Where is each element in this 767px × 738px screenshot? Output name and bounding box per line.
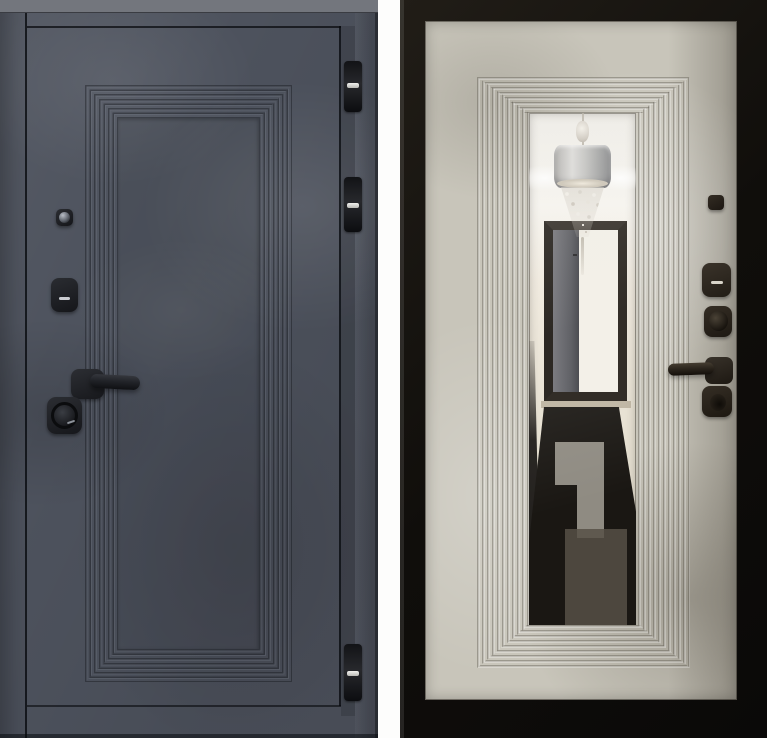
hinge-pin-highlight — [347, 671, 359, 676]
molding-band-bottom — [85, 649, 292, 682]
night-latch-knob — [702, 386, 732, 417]
hinge-bottom — [344, 644, 362, 701]
hinge-top — [344, 61, 362, 112]
molding-band-right — [259, 85, 292, 682]
front-frame-header — [0, 0, 378, 13]
peephole — [56, 209, 73, 226]
thumbturn-knob — [709, 311, 728, 331]
hinge-middle — [344, 177, 362, 232]
back-door-leaf — [425, 21, 737, 700]
keyhole-escutcheon — [51, 278, 78, 312]
mirror-sheen — [529, 113, 636, 625]
cylinder-thumbturn — [47, 397, 82, 434]
hinge-pin-highlight — [347, 83, 359, 88]
back-door-photo — [400, 0, 767, 738]
peephole — [708, 195, 724, 210]
photo-divider — [378, 0, 400, 738]
front-frame-left-jamb — [0, 0, 27, 738]
lever-handle — [668, 362, 714, 376]
keyhole-slot-icon — [711, 281, 723, 284]
keyhole-slot-icon — [59, 297, 70, 300]
thumbturn-dash-icon — [67, 420, 75, 424]
molding-band-top — [85, 85, 292, 118]
front-frame-right-jamb — [355, 13, 378, 738]
keyhole-escutcheon — [702, 263, 731, 297]
thumbturn-ring — [51, 402, 78, 429]
two-door-product-photo — [0, 0, 767, 738]
hinge-pin-highlight — [347, 203, 359, 208]
front-door-photo — [0, 0, 378, 738]
mirror — [529, 113, 636, 625]
front-frame-sill — [0, 734, 378, 738]
front-leaf-edge-shadow — [341, 26, 355, 716]
front-leaf-bottom-seam — [27, 705, 341, 707]
lever-handle — [90, 374, 141, 391]
front-leaf-top-seam — [27, 26, 341, 28]
molding-band-left — [477, 77, 529, 668]
knob-shadow — [710, 394, 726, 411]
peephole-lens-icon — [59, 212, 70, 223]
back-frame-edge-highlight — [400, 0, 404, 738]
thumbturn — [704, 306, 732, 337]
